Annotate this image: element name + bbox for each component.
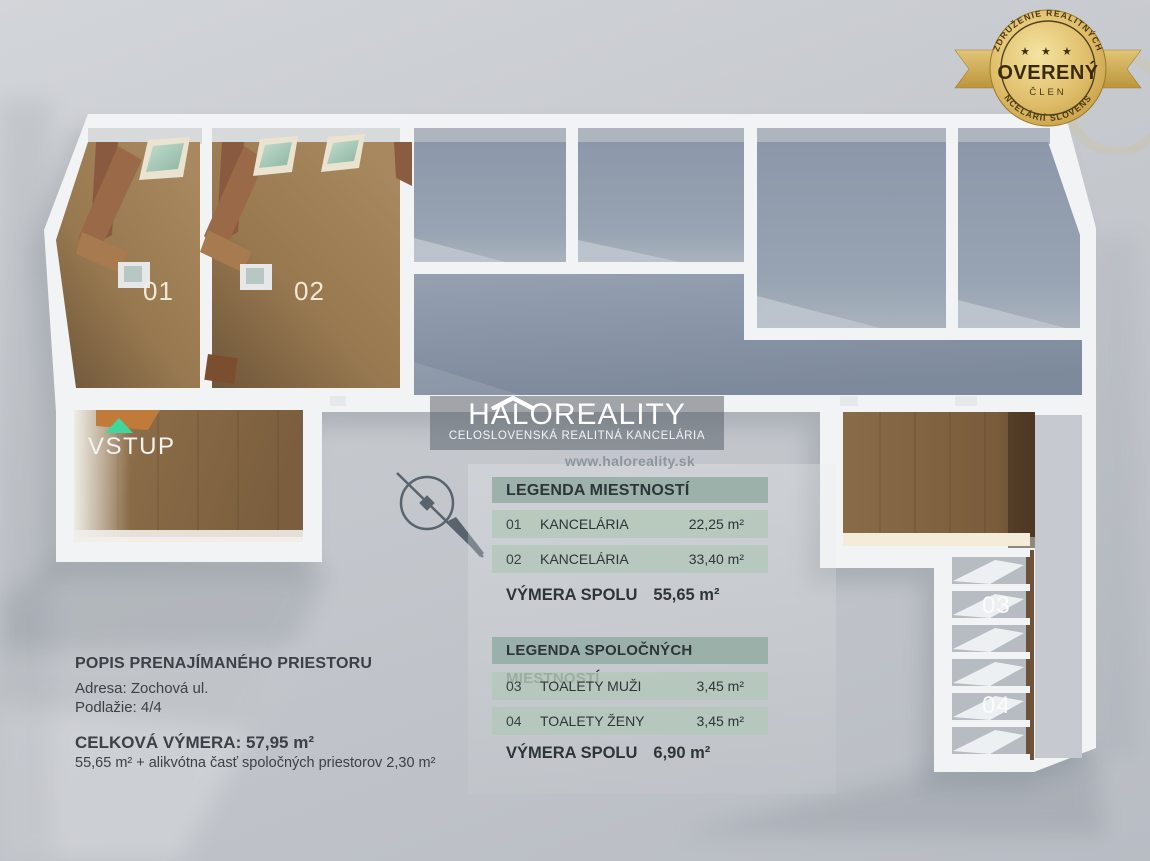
badge-stars: ★ ★ ★ — [1020, 46, 1076, 58]
room-03-label: 03 — [982, 592, 1011, 620]
room-name: KANCELÁRIA — [540, 545, 689, 573]
room-c-floor — [757, 142, 946, 328]
room-a-floor — [414, 142, 566, 262]
bottom-right-section — [843, 412, 1082, 762]
room-id: 02 — [506, 545, 540, 573]
website-url: www.haloreality.sk — [555, 453, 705, 469]
room-area: 22,25 m² — [689, 510, 744, 538]
legend-rooms: LEGENDA MIESTNOSTÍ 01 KANCELÁRIA 22,25 m… — [492, 477, 768, 617]
description-total-note: 55,65 m² + alikvótna časť spoločných pri… — [75, 755, 495, 771]
legend-common: LEGENDA SPOLOČNÝCH MIESTNOSTÍ 03 TOALETY… — [492, 637, 768, 777]
brand-subtitle: CELOSLOVENSKÁ REALITNÁ KANCELÁRIA — [430, 430, 724, 442]
roof-icon — [490, 395, 536, 410]
legend-row: 03 TOALETY MUŽI 3,45 m² — [492, 672, 768, 700]
room-area: 3,45 m² — [697, 707, 744, 735]
description-floor: Podlažie: 4/4 — [75, 699, 495, 716]
right-room-floor — [843, 412, 1035, 537]
floorplan-page: 01 02 03 04 VSTUP HALOREALITY CELOSLOVEN… — [0, 0, 1150, 861]
legend-row: 02 KANCELÁRIA 33,40 m² — [492, 545, 768, 573]
room-04-label: 04 — [982, 692, 1011, 720]
legend-common-total: VÝMERA SPOLU 6,90 m² — [506, 744, 782, 763]
room-area: 3,45 m² — [697, 672, 744, 700]
badge-title: OVERENÝ — [997, 60, 1098, 84]
legend-rooms-title: LEGENDA MIESTNOSTÍ — [492, 477, 768, 503]
room-01-label: 01 — [143, 276, 174, 307]
toilets-stack — [944, 550, 1034, 762]
room-name: TOALETY MUŽI — [540, 672, 697, 700]
room-name: KANCELÁRIA — [540, 510, 689, 538]
entry-room — [74, 410, 303, 542]
legend-row: 04 TOALETY ŽENY 3,45 m² — [492, 707, 768, 735]
legend-common-title: LEGENDA SPOLOČNÝCH MIESTNOSTÍ — [492, 637, 768, 664]
badge-member-label: ČLEN — [1029, 87, 1066, 98]
room-b-floor — [578, 142, 744, 262]
room-02-label: 02 — [294, 276, 325, 307]
description-title: POPIS PRENAJÍMANÉHO PRIESTORU — [75, 655, 495, 673]
room-id: 01 — [506, 510, 540, 538]
legend-row: 01 KANCELÁRIA 22,25 m² — [492, 510, 768, 538]
room-id: 04 — [506, 707, 540, 735]
verified-badge: ZDRUŽENIE REALITNÝCH KANCELÁRIÍ SLOVENSK… — [945, 2, 1150, 154]
total-label: VÝMERA SPOLU — [506, 744, 637, 763]
property-description: POPIS PRENAJÍMANÉHO PRIESTORU Adresa: Zo… — [75, 655, 495, 771]
total-area: 6,90 m² — [653, 744, 710, 763]
total-area: 55,65 m² — [653, 586, 719, 605]
entry-label: VSTUP — [88, 433, 176, 461]
brand-logo: HALOREALITY CELOSLOVENSKÁ REALITNÁ KANCE… — [430, 396, 724, 450]
total-label: VÝMERA SPOLU — [506, 586, 637, 605]
description-address: Adresa: Zochová ul. — [75, 680, 495, 697]
room-name: TOALETY ŽENY — [540, 707, 697, 735]
legend-rooms-total: VÝMERA SPOLU 55,65 m² — [506, 586, 782, 605]
room-area: 33,40 m² — [689, 545, 744, 573]
description-total-area: CELKOVÁ VÝMERA: 57,95 m² — [75, 733, 495, 753]
room-id: 03 — [506, 672, 540, 700]
